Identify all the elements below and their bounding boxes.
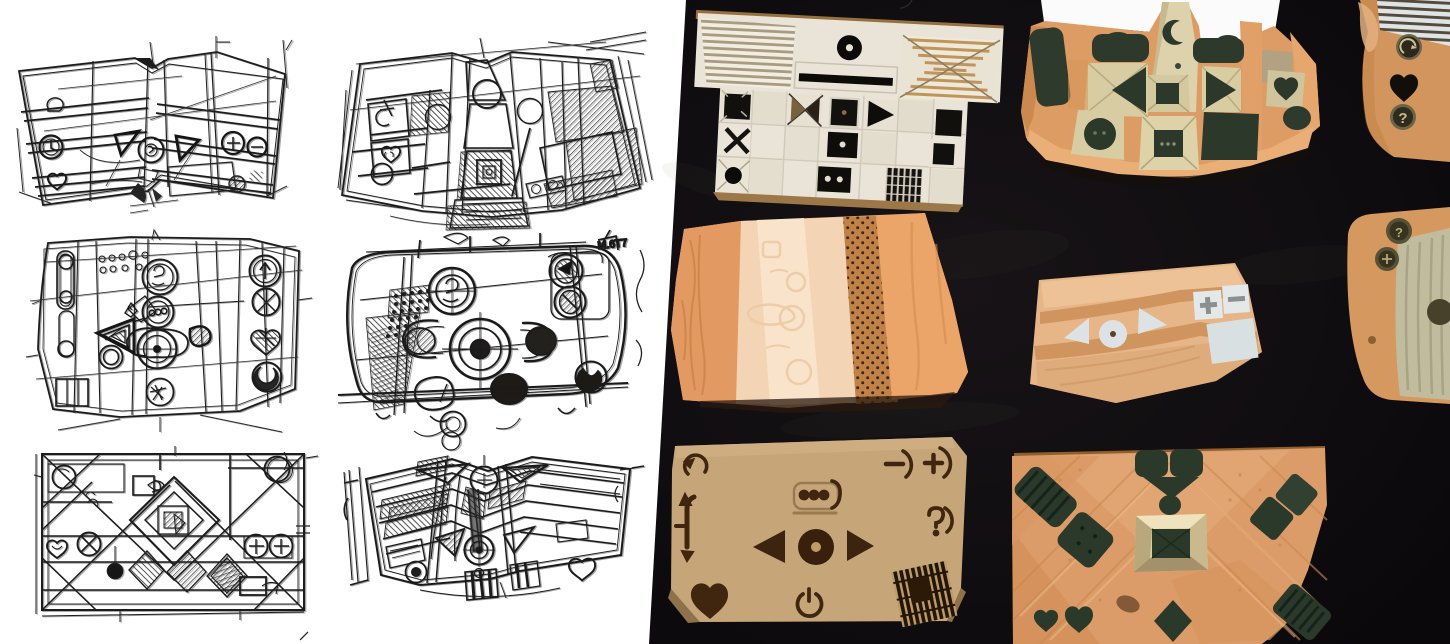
svg-text:?: ?: [1398, 110, 1407, 127]
svg-text:?: ?: [1395, 225, 1403, 240]
